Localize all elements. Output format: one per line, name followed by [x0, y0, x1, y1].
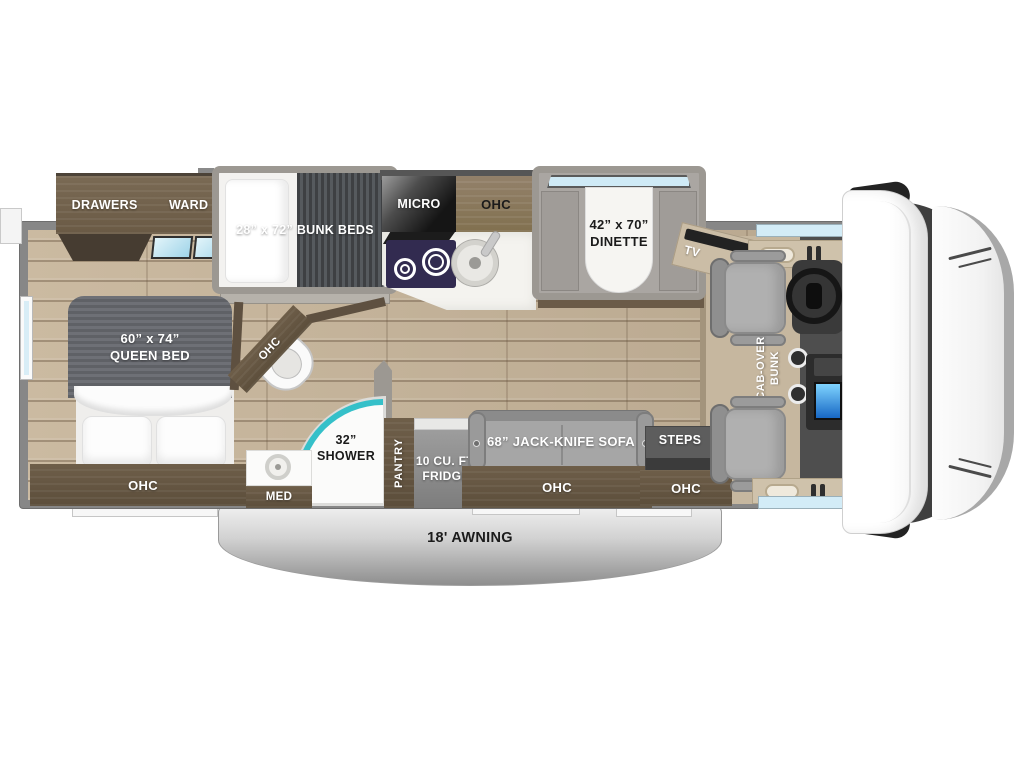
cab-over-front-cap [842, 190, 928, 534]
bunk-slideout: 28” x 72” BUNK BEDS [212, 166, 398, 294]
tv-label: TV [683, 243, 702, 260]
pillow [82, 416, 152, 468]
burner-icon [394, 258, 416, 280]
dinette-bench [541, 191, 579, 291]
med-label: MED [266, 491, 292, 503]
bath-sink [265, 454, 291, 480]
ward-label: WARD [169, 198, 208, 212]
pillow [156, 416, 226, 468]
dinette-table: 42” x 70” DINETTE [585, 187, 653, 293]
bedroom-ohc-label: OHC [128, 478, 158, 493]
entry-steps: STEPS [645, 426, 715, 474]
queen-bed-size-label: 60” x 74” [120, 330, 179, 347]
pantry: PANTRY [384, 418, 414, 508]
shower-name-label: SHOWER [317, 448, 375, 464]
queen-bed: 60” x 74” QUEEN BED [68, 296, 232, 398]
entry-ohc-label: OHC [671, 481, 701, 496]
bedroom-ohc-cabinet: OHC [30, 464, 256, 506]
pantry-label: PANTRY [393, 438, 405, 488]
infotainment-screen [814, 382, 842, 420]
microwave: MICRO [382, 176, 456, 232]
wardrobe-cabinet: DRAWERS WARD [56, 176, 224, 234]
shower-size-label: 32” [335, 432, 356, 448]
cab-over-line2: BUNK [768, 351, 782, 385]
sofa-ohc-label: OHC [542, 480, 572, 495]
seat-cushion [724, 408, 786, 480]
seat-armrest [730, 250, 786, 262]
queen-bed-name-label: QUEEN BED [110, 347, 190, 364]
awning [218, 506, 722, 586]
jack-knife-sofa: 68” JACK-KNIFE SOFA [470, 410, 652, 472]
awning-label: 18' AWNING [218, 530, 722, 546]
seat-armrest [730, 396, 786, 408]
mirror-door [151, 236, 193, 259]
sofa-ohc-cabinet: OHC [462, 466, 652, 508]
cooktop [386, 240, 456, 288]
kitchen-ohc-cabinet: OHC [456, 176, 536, 232]
dinette-name-label: DINETTE [590, 233, 648, 250]
slide-rail [0, 208, 22, 244]
slide-rail [616, 507, 692, 517]
dinette-size-label: 42” x 70” [589, 216, 648, 233]
bunk-beds-label: 28” x 72” BUNK BEDS [219, 173, 391, 287]
burner-icon [422, 248, 450, 276]
cab-window [758, 496, 848, 509]
kitchen-ohc-label: OHC [481, 197, 511, 212]
cab-window [756, 224, 848, 237]
steps-label: STEPS [659, 433, 702, 447]
medicine-cabinet: MED [246, 486, 312, 508]
sofa-label: 68” JACK-KNIFE SOFA [470, 410, 652, 472]
micro-label: MICRO [397, 197, 440, 211]
cab-over-line1: CAB-OVER [754, 336, 768, 399]
steering-wheel [786, 268, 842, 324]
cabinet-front [58, 234, 152, 261]
drawers-label: DRAWERS [72, 198, 138, 212]
bedroom-window [20, 296, 33, 380]
cup-holder-icon [788, 348, 808, 368]
